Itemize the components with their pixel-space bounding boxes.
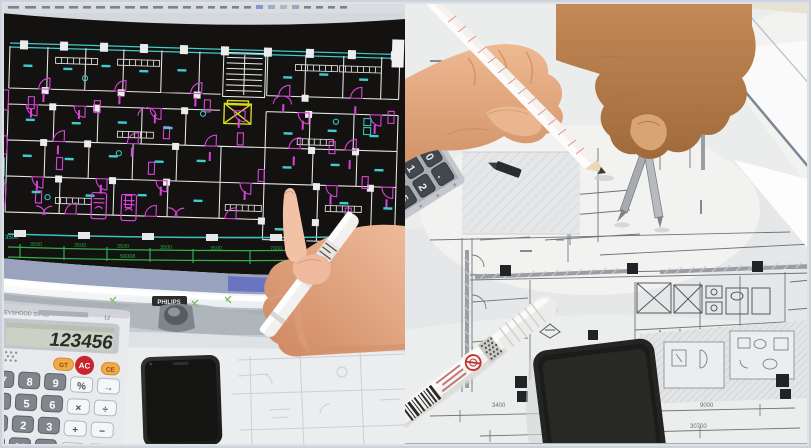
svg-text:7000: 7000 xyxy=(270,246,282,252)
svg-text:GT: GT xyxy=(59,362,68,369)
svg-text:3500: 3500 xyxy=(117,244,129,250)
svg-text:12: 12 xyxy=(104,315,110,321)
svg-text:3500: 3500 xyxy=(210,246,222,252)
svg-text:3: 3 xyxy=(46,421,53,433)
svg-text:8: 8 xyxy=(26,376,33,388)
svg-text:%: % xyxy=(77,381,87,392)
svg-text:5: 5 xyxy=(23,398,30,410)
svg-text:9: 9 xyxy=(52,378,59,390)
svg-text:×: × xyxy=(75,403,82,414)
svg-text:→: → xyxy=(103,382,114,394)
svg-text:3500: 3500 xyxy=(30,242,42,248)
svg-text:CE: CE xyxy=(106,366,116,373)
svg-text:6: 6 xyxy=(49,400,56,412)
svg-text:AC: AC xyxy=(79,361,91,371)
svg-text:56008: 56008 xyxy=(120,254,135,260)
svg-text:3500: 3500 xyxy=(160,245,172,251)
svg-text:2: 2 xyxy=(20,420,27,432)
svg-text:123456: 123456 xyxy=(48,330,115,354)
svg-text:3400: 3400 xyxy=(492,403,506,409)
svg-text:3500: 3500 xyxy=(74,243,86,249)
svg-text:+: + xyxy=(72,425,79,436)
svg-text:−: − xyxy=(99,426,106,437)
